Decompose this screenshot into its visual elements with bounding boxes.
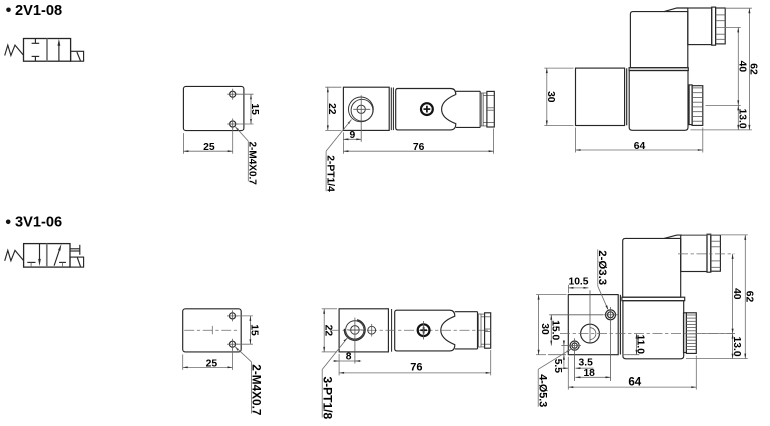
svg-text:4-Ø5.3: 4-Ø5.3 xyxy=(536,374,548,407)
svg-text:15.0: 15.0 xyxy=(550,320,561,340)
svg-text:8: 8 xyxy=(346,352,352,363)
svg-text:76: 76 xyxy=(410,361,422,373)
svg-text:3.5: 3.5 xyxy=(579,357,594,368)
svg-text:2-PT1/4: 2-PT1/4 xyxy=(324,155,335,192)
svg-text:62: 62 xyxy=(748,63,759,75)
svg-text:22: 22 xyxy=(322,325,333,337)
svg-text:2-M4X0.7: 2-M4X0.7 xyxy=(250,364,264,416)
svg-text:2-Ø3.3: 2-Ø3.3 xyxy=(596,250,608,285)
svg-text:76: 76 xyxy=(413,142,425,153)
svg-text:11.0: 11.0 xyxy=(635,334,646,354)
svg-text:64: 64 xyxy=(634,141,646,152)
svg-text:2-M4X0.7: 2-M4X0.7 xyxy=(247,142,258,186)
svg-text:30: 30 xyxy=(539,323,550,335)
svg-text:40: 40 xyxy=(731,288,742,300)
svg-text:62: 62 xyxy=(744,291,755,303)
svg-text:3V1-06: 3V1-06 xyxy=(15,215,62,231)
svg-text:10.5: 10.5 xyxy=(568,277,588,288)
svg-text:64: 64 xyxy=(628,375,641,388)
svg-text:40: 40 xyxy=(737,61,748,73)
svg-text:15: 15 xyxy=(249,103,260,115)
svg-text:2V1-08: 2V1-08 xyxy=(15,3,62,19)
svg-text:9: 9 xyxy=(350,130,356,141)
svg-text:13.0: 13.0 xyxy=(737,109,748,129)
svg-text:15: 15 xyxy=(249,324,260,336)
svg-text:30: 30 xyxy=(545,91,556,103)
svg-text:22: 22 xyxy=(326,103,337,115)
svg-text:18: 18 xyxy=(583,368,595,379)
svg-text:25: 25 xyxy=(203,142,215,153)
svg-text:13.0: 13.0 xyxy=(731,337,742,357)
svg-text:3-PT1/8: 3-PT1/8 xyxy=(320,377,334,420)
svg-text:25: 25 xyxy=(206,358,218,369)
svg-text:5.5: 5.5 xyxy=(552,359,563,374)
